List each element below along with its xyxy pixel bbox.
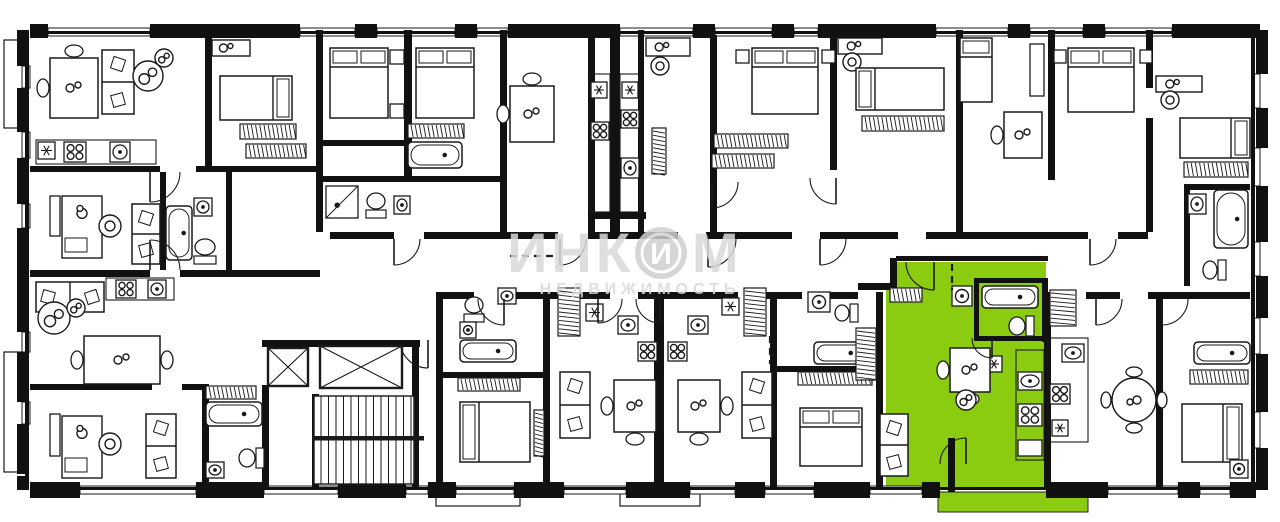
bed-icon	[752, 48, 818, 114]
stove-icon	[668, 342, 687, 361]
wall	[17, 476, 29, 490]
wall	[30, 482, 80, 498]
cabinet-icon	[1018, 440, 1042, 456]
wall	[974, 278, 979, 340]
sofa-icon	[132, 204, 160, 264]
wall	[1118, 232, 1148, 239]
wall	[830, 292, 858, 299]
wall	[404, 176, 504, 182]
wall	[160, 172, 166, 270]
stairs-icon	[312, 396, 424, 484]
door-swing-icon	[820, 239, 846, 265]
wall	[30, 384, 152, 390]
cabinet-icon	[50, 414, 60, 456]
wall	[436, 292, 443, 490]
wall	[1046, 482, 1108, 498]
sofa-icon	[102, 50, 134, 114]
wall	[922, 482, 940, 498]
bed-icon	[460, 402, 530, 462]
wardrobe-icon	[246, 144, 306, 158]
wall	[638, 30, 644, 232]
stove-icon	[591, 122, 609, 140]
watermark-subtitle: НЕДВИЖИМОСТЬ	[540, 281, 741, 298]
sofa-icon	[560, 372, 590, 438]
wall	[1256, 354, 1268, 412]
dining-table-icon	[71, 336, 173, 384]
toilet-icon	[835, 304, 858, 322]
armchair-icon	[956, 390, 976, 410]
elevator-icon	[268, 348, 308, 386]
stove-icon	[64, 142, 86, 162]
toilet-icon	[194, 239, 216, 264]
sofa-icon	[880, 414, 908, 476]
sink-icon	[206, 462, 224, 478]
wall	[17, 158, 29, 204]
wall	[226, 172, 232, 270]
sink-icon	[394, 196, 410, 214]
wall	[814, 482, 870, 498]
wall	[820, 232, 898, 239]
vent-icon	[38, 142, 55, 159]
wall	[436, 372, 548, 378]
wardrobe-icon	[458, 378, 520, 391]
wall	[890, 258, 897, 290]
stove-icon	[116, 280, 136, 298]
wall	[974, 278, 1046, 283]
toilet-icon	[464, 297, 484, 322]
wall	[1086, 292, 1120, 299]
bathtub-icon	[460, 340, 516, 362]
wall	[948, 438, 955, 492]
wall	[926, 232, 1088, 239]
wardrobe-icon	[240, 124, 296, 139]
cabinet-icon	[390, 104, 404, 118]
wall	[182, 384, 204, 390]
cabinet-icon	[1054, 50, 1066, 63]
wall	[316, 30, 323, 232]
cabinet-icon	[50, 196, 60, 236]
bathtub-icon	[206, 402, 262, 426]
sink-icon	[1018, 372, 1042, 390]
bed-icon	[960, 38, 992, 102]
wall	[514, 482, 564, 498]
wall	[1178, 482, 1200, 498]
vent-icon	[591, 82, 607, 98]
bed-icon	[1068, 48, 1134, 112]
wall	[1256, 30, 1268, 74]
floor-plan-svg: ИНК И М НЕДВИЖИМОСТЬ	[0, 0, 1280, 522]
desk-icon	[62, 416, 102, 478]
vent-icon	[1052, 420, 1068, 436]
wall	[735, 482, 765, 498]
watermark-text-left: ИНК	[507, 221, 634, 284]
sofa-icon	[146, 414, 176, 478]
toilet-icon	[1009, 316, 1034, 336]
sofa-icon	[742, 372, 772, 438]
wall	[17, 88, 29, 132]
wall	[858, 283, 892, 290]
wall	[17, 352, 29, 402]
desk-icon	[62, 196, 102, 258]
armchair-icon	[38, 302, 70, 334]
washer-icon	[808, 292, 830, 312]
wardrobe-icon	[744, 288, 766, 336]
wall	[1256, 276, 1268, 318]
wall	[17, 228, 29, 332]
wardrobe-icon	[206, 386, 256, 399]
wall	[30, 166, 160, 172]
bed-icon	[800, 408, 862, 466]
stove-icon	[621, 110, 639, 128]
wardrobe-icon	[534, 410, 544, 457]
door-swing-icon	[1162, 299, 1188, 325]
bed-icon	[1180, 118, 1250, 158]
wardrobe-icon	[1190, 370, 1248, 384]
sink-icon	[621, 158, 639, 178]
wall	[588, 212, 646, 219]
bathtub-icon	[1194, 342, 1250, 364]
wall	[1184, 184, 1250, 190]
wall	[330, 232, 394, 239]
sink-icon	[688, 316, 708, 334]
door-swing-icon	[1090, 239, 1116, 265]
wardrobe-icon	[856, 328, 876, 380]
wall	[318, 176, 406, 182]
vent-icon	[622, 82, 638, 98]
cabinet-icon	[1030, 44, 1044, 96]
chair-icon	[651, 57, 669, 75]
sink-icon	[110, 142, 130, 162]
wardrobe-icon	[714, 134, 788, 148]
cabinet-icon	[1140, 50, 1152, 63]
bed-icon	[220, 76, 292, 120]
wardrobe-icon	[408, 124, 464, 138]
wall	[205, 35, 212, 172]
armchair-icon	[155, 49, 173, 67]
wardrobe-icon	[1050, 290, 1076, 326]
sink-icon	[498, 288, 516, 304]
wall	[17, 424, 29, 474]
cabinet-icon	[822, 50, 835, 63]
bed-icon	[856, 68, 944, 110]
toilet-icon	[1203, 260, 1226, 280]
dining-table-icon	[37, 45, 98, 118]
wall	[1146, 118, 1153, 232]
floor-plan: ИНК И М НЕДВИЖИМОСТЬ	[0, 0, 1280, 522]
cabinet-icon	[390, 50, 404, 64]
desk-icon	[212, 40, 250, 56]
wardrobe-icon	[890, 288, 922, 302]
wall	[1256, 108, 1268, 148]
sink-icon	[194, 198, 212, 216]
stove-icon	[1018, 404, 1042, 426]
chair-icon	[99, 215, 121, 237]
bed-icon	[330, 48, 388, 118]
inkom-logo-glyph: И	[650, 238, 672, 271]
floor-plan-layers	[4, 24, 1268, 512]
washer-icon	[952, 286, 972, 306]
sink-icon	[1062, 344, 1084, 362]
bathtub-icon	[408, 142, 462, 168]
wall	[543, 292, 550, 490]
armchair-icon	[67, 299, 85, 317]
wall	[262, 385, 269, 490]
bathtub-icon	[166, 206, 192, 260]
wall	[1256, 448, 1268, 490]
wall	[196, 166, 320, 172]
washer-icon	[460, 322, 476, 338]
wall	[17, 30, 29, 66]
stove-icon	[1050, 384, 1070, 404]
door-swing-icon	[810, 178, 836, 204]
desk-icon	[838, 38, 882, 54]
wardrobe-icon	[652, 128, 666, 175]
bathtub-icon	[1214, 190, 1248, 248]
wardrobe-icon	[712, 154, 774, 168]
shower-icon	[326, 186, 358, 218]
wall	[610, 30, 620, 232]
toilet-icon	[366, 193, 386, 218]
bed-icon	[1182, 404, 1242, 462]
dining-table-icon	[991, 112, 1042, 158]
wall	[180, 270, 320, 277]
stove-icon	[638, 342, 657, 361]
wall	[974, 336, 1046, 341]
wall	[1148, 292, 1250, 299]
wall	[1251, 30, 1255, 490]
watermark: ИНК И М НЕДВИЖИМОСТЬ	[507, 221, 743, 298]
wall	[896, 256, 1048, 261]
elevator-icon	[320, 346, 402, 388]
door-swing-icon	[394, 239, 420, 265]
wardrobe-icon	[1184, 162, 1248, 177]
bathtub-icon	[982, 286, 1038, 308]
toilet-icon	[239, 448, 264, 468]
watermark-text-right: М	[692, 221, 743, 284]
sink-icon	[148, 280, 166, 298]
desk-icon	[646, 38, 690, 56]
chair-icon	[99, 433, 121, 455]
wall	[500, 30, 507, 232]
bed-icon	[416, 48, 474, 118]
sink-icon	[618, 316, 638, 334]
cabinet-icon	[736, 50, 749, 63]
wall	[1256, 186, 1268, 242]
dining-table-icon	[601, 380, 656, 445]
wall	[320, 140, 406, 146]
wardrobe-icon	[862, 116, 944, 131]
chair-icon	[1161, 91, 1179, 109]
door-swing-icon	[1096, 299, 1122, 325]
vent-icon	[586, 304, 603, 321]
dining-table-icon	[678, 380, 733, 445]
sink-icon	[1188, 194, 1206, 214]
wall	[30, 270, 150, 277]
vent-icon	[722, 298, 739, 315]
desk-icon	[1156, 76, 1202, 92]
washer-icon	[1230, 460, 1248, 478]
